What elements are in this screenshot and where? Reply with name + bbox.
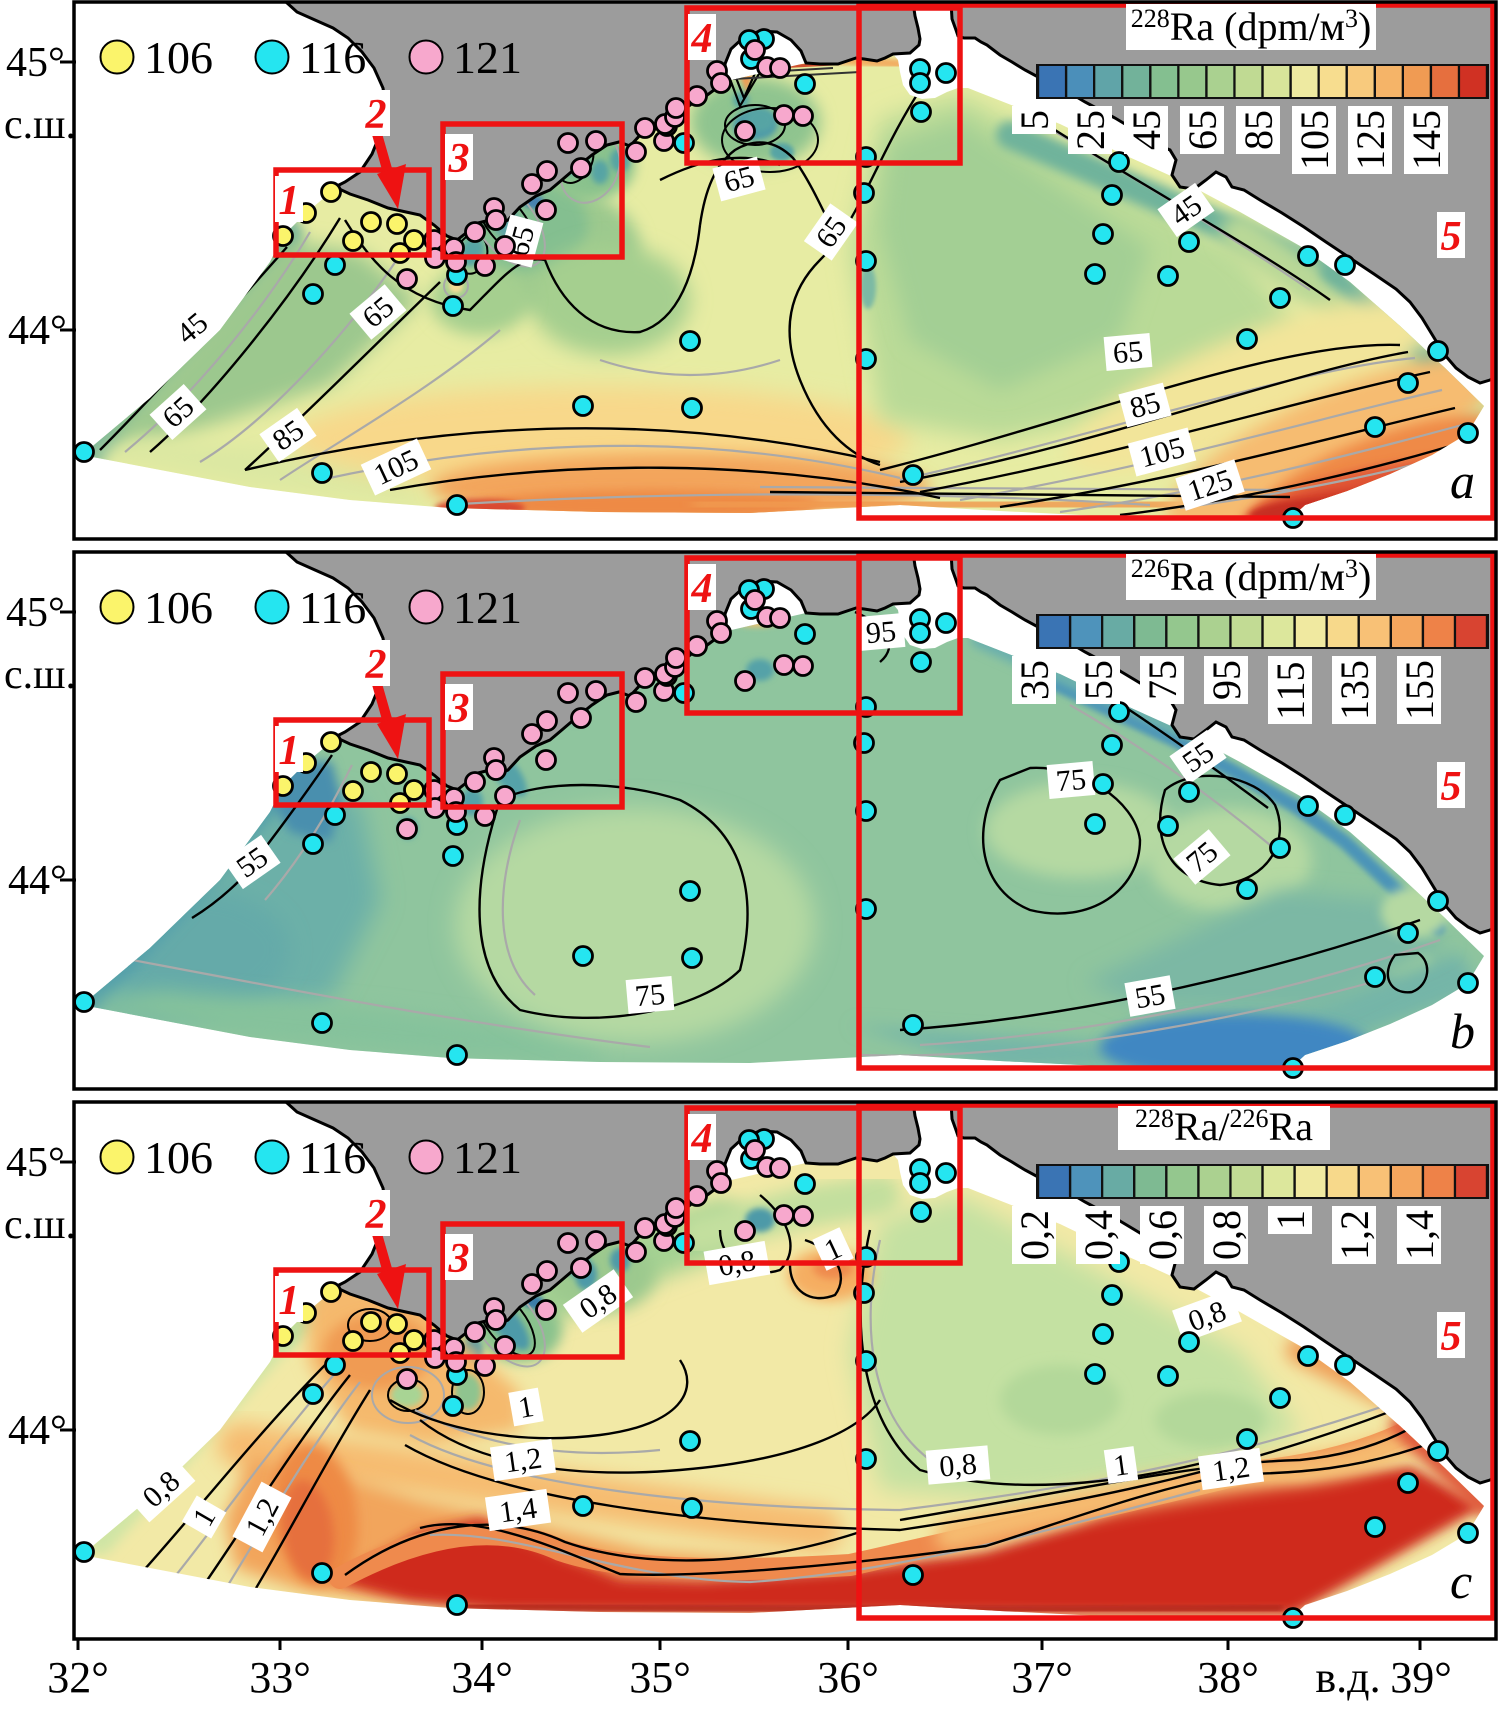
svg-text:75: 75 xyxy=(1055,763,1088,798)
svg-text:0,8: 0,8 xyxy=(938,1447,978,1483)
svg-text:5: 5 xyxy=(1441,764,1462,810)
svg-text:3: 3 xyxy=(448,686,470,732)
svg-text:5: 5 xyxy=(1012,110,1057,130)
svg-text:106: 106 xyxy=(144,1132,213,1183)
svg-text:c: c xyxy=(1450,1553,1472,1609)
svg-text:0,4: 0,4 xyxy=(1076,1210,1121,1260)
svg-text:1: 1 xyxy=(279,728,300,774)
svg-text:45°: 45° xyxy=(6,590,65,636)
svg-text:45: 45 xyxy=(1124,110,1169,150)
svg-text:25: 25 xyxy=(1068,110,1113,150)
svg-text:33°: 33° xyxy=(249,1653,311,1702)
svg-text:1,2: 1,2 xyxy=(1210,1451,1252,1489)
svg-text:с.ш.: с.ш. xyxy=(4,102,76,148)
svg-text:55: 55 xyxy=(1132,978,1167,1016)
svg-text:155: 155 xyxy=(1397,660,1442,720)
svg-text:116: 116 xyxy=(299,32,366,83)
svg-text:106: 106 xyxy=(144,582,213,633)
svg-text:121: 121 xyxy=(453,582,522,633)
svg-text:4: 4 xyxy=(691,566,713,612)
svg-text:35°: 35° xyxy=(629,1653,691,1702)
svg-text:5: 5 xyxy=(1441,214,1462,260)
svg-text:115: 115 xyxy=(1268,661,1313,720)
svg-text:5: 5 xyxy=(1441,1314,1462,1360)
svg-text:в.д.: в.д. xyxy=(1315,1653,1380,1702)
svg-text:95: 95 xyxy=(1204,660,1249,700)
svg-text:36°: 36° xyxy=(817,1653,879,1702)
svg-text:85: 85 xyxy=(1236,110,1281,150)
svg-text:95: 95 xyxy=(865,615,898,650)
svg-text:3: 3 xyxy=(448,136,470,182)
svg-text:106: 106 xyxy=(144,32,213,83)
svg-text:1: 1 xyxy=(279,178,300,224)
svg-text:2: 2 xyxy=(365,92,387,138)
svg-text:1,4: 1,4 xyxy=(1397,1210,1442,1260)
svg-text:65: 65 xyxy=(1112,335,1145,370)
svg-text:37°: 37° xyxy=(1011,1653,1073,1702)
svg-text:0,2: 0,2 xyxy=(1012,1210,1057,1260)
svg-text:121: 121 xyxy=(453,1132,522,1183)
svg-text:116: 116 xyxy=(299,1132,366,1183)
svg-text:1,4: 1,4 xyxy=(497,1492,539,1530)
svg-text:45°: 45° xyxy=(6,1140,65,1186)
svg-text:55: 55 xyxy=(1076,660,1121,700)
svg-text:0,6: 0,6 xyxy=(1140,1210,1185,1260)
svg-text:75: 75 xyxy=(634,978,667,1013)
svg-text:39°: 39° xyxy=(1390,1653,1452,1702)
svg-text:с.ш.: с.ш. xyxy=(4,652,76,698)
svg-text:65: 65 xyxy=(1180,110,1225,150)
svg-text:45°: 45° xyxy=(6,40,65,86)
svg-text:44°: 44° xyxy=(8,858,67,904)
svg-text:1: 1 xyxy=(1268,1210,1313,1230)
svg-text:2: 2 xyxy=(365,1192,387,1238)
svg-text:1,2: 1,2 xyxy=(1332,1210,1377,1260)
svg-text:75: 75 xyxy=(1140,660,1185,700)
svg-text:34°: 34° xyxy=(451,1653,513,1702)
svg-text:105: 105 xyxy=(1292,110,1337,170)
svg-text:116: 116 xyxy=(299,582,366,633)
svg-text:44°: 44° xyxy=(8,1408,67,1454)
svg-text:32°: 32° xyxy=(47,1653,109,1702)
svg-text:1,2: 1,2 xyxy=(502,1442,544,1480)
svg-text:1: 1 xyxy=(279,1278,300,1324)
svg-text:135: 135 xyxy=(1332,660,1377,720)
svg-text:0,8: 0,8 xyxy=(1204,1210,1249,1260)
svg-text:44°: 44° xyxy=(8,308,67,354)
svg-text:2: 2 xyxy=(365,642,387,688)
svg-text:b: b xyxy=(1450,1003,1475,1059)
svg-text:3: 3 xyxy=(448,1236,470,1282)
svg-text:4: 4 xyxy=(691,1116,713,1162)
svg-text:a: a xyxy=(1450,453,1475,509)
svg-text:125: 125 xyxy=(1348,110,1393,170)
svg-text:4: 4 xyxy=(691,16,713,62)
svg-text:с.ш.: с.ш. xyxy=(4,1202,76,1248)
svg-text:145: 145 xyxy=(1404,110,1449,170)
svg-text:38°: 38° xyxy=(1197,1653,1259,1702)
svg-text:121: 121 xyxy=(453,32,522,83)
svg-text:35: 35 xyxy=(1012,660,1057,700)
